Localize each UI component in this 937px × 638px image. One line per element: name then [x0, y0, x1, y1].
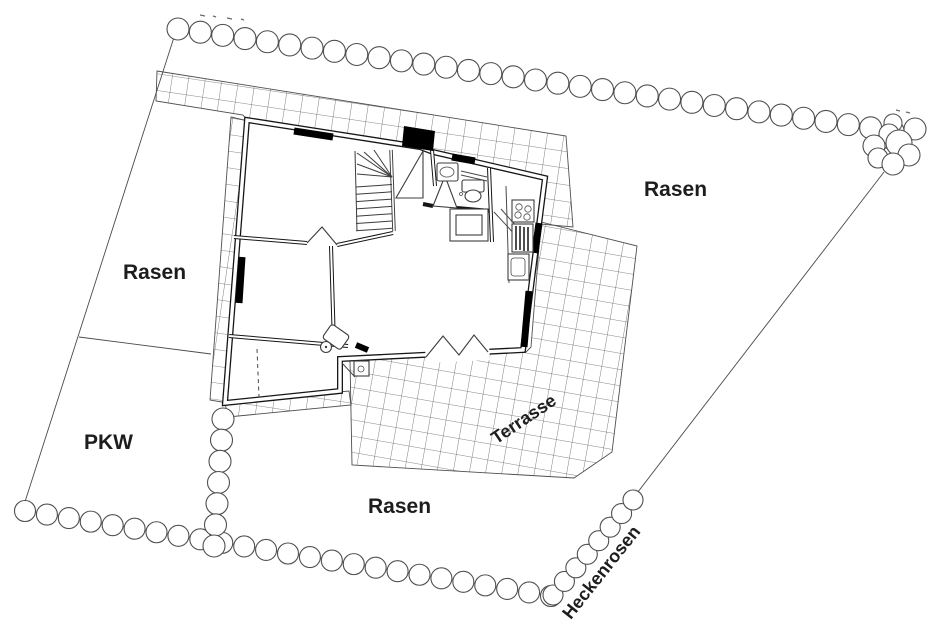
entry-step — [354, 361, 369, 376]
hedge-shrub-circle — [453, 571, 474, 592]
hedge-shrub-circle — [770, 104, 792, 126]
hedge-shrub-circle — [146, 522, 167, 543]
hedge-shrub-circle — [569, 75, 591, 97]
parking-divider-line — [79, 337, 211, 354]
hedge-shrub-circle — [387, 561, 408, 582]
hedge-shrub-circle — [206, 493, 228, 515]
hedge-shrub-circle — [208, 472, 230, 494]
hedge-shrub-circle — [882, 153, 904, 175]
window-top-right — [452, 157, 475, 161]
hedge-shrub-circle — [343, 554, 364, 575]
hedge-shrub-circle — [457, 59, 479, 81]
hedge-shrub-circle — [299, 547, 320, 568]
site-plan-canvas: Rasen Rasen Rasen PKW Terrasse Heckenros… — [0, 0, 937, 638]
hedge-shrub-circle — [346, 44, 368, 66]
hedge-shrub-circle — [837, 114, 859, 136]
hedge-shrub-circle — [480, 63, 502, 85]
toilet-bowl — [465, 190, 481, 202]
hedge-shrub-circle — [102, 515, 123, 536]
hedge-shrub-circle — [234, 536, 255, 557]
shower-inner — [456, 215, 482, 235]
hedge-shrub-circle — [614, 82, 636, 104]
hedge-shrub-circle — [681, 91, 703, 113]
hedge-shrub-circle — [189, 21, 211, 43]
hedge-shrub-circle — [365, 557, 386, 578]
hedge-shrub-circle — [212, 408, 234, 430]
hedge-shrub-circle — [278, 543, 299, 564]
hedge-shrub-circle — [301, 37, 323, 59]
hedge-shrub-circle — [592, 79, 614, 101]
hedge-shrub-circle — [205, 514, 227, 536]
hedge-shrub-circle — [497, 578, 518, 599]
hedge-shrub-circle — [15, 501, 36, 522]
hedge-shrub-circle — [502, 66, 524, 88]
hedge-shrub-circle — [409, 564, 430, 585]
hedge-shrub-circle — [234, 28, 256, 50]
hedge-shrub-circle — [168, 525, 189, 546]
hedge-shrub-circle — [368, 47, 390, 69]
hedge-shrub-circle — [793, 107, 815, 129]
hedge-shrub-circle — [279, 34, 301, 56]
hedge-shrub-circle — [413, 53, 435, 75]
label-lawn-right: Rasen — [644, 178, 707, 201]
window-right-2 — [524, 291, 529, 347]
hedge-shrub-circle — [525, 69, 547, 91]
label-parking: PKW — [84, 431, 133, 454]
hedge-shrub-circle — [547, 72, 569, 94]
hedge-shrub-circle — [519, 582, 540, 603]
hedge-shrub-circle — [124, 518, 145, 539]
hedge-shrub-circle — [203, 535, 225, 557]
hedge-shrub-circle — [256, 31, 278, 53]
hedge-bottom — [15, 501, 562, 607]
hedge-shrub-circle — [212, 24, 234, 46]
hedge-shrub-circle — [703, 95, 725, 117]
hedge-shrub-circle — [815, 110, 837, 132]
hedge-shrub-circle — [80, 511, 101, 532]
hedge-shrub-circle — [321, 550, 342, 571]
label-lawn-bottom: Rasen — [368, 495, 431, 518]
hedge-shrub-circle — [475, 575, 496, 596]
window-left — [239, 257, 242, 303]
oven — [512, 224, 533, 252]
window-right-1 — [535, 223, 539, 253]
hedge-shrub-circle — [209, 450, 231, 472]
hedge-shrub-circle — [636, 85, 658, 107]
hedge-shrub-circle — [623, 490, 643, 510]
hedge-shrub-circle — [58, 508, 79, 529]
hedge-shrub-circle — [211, 429, 233, 451]
hedge-shrub-circle — [659, 88, 681, 110]
hedge-shrub-circle — [36, 504, 57, 525]
hedge-shrub-circle — [167, 18, 189, 40]
site-plan-drawing: Rasen Rasen Rasen PKW Terrasse Heckenros… — [0, 0, 937, 638]
hedge-shrub-circle — [390, 50, 412, 72]
hedge-shrub-circle — [431, 568, 452, 589]
hedge-shrub-circle — [726, 98, 748, 120]
hedge-shrub-circle — [256, 539, 277, 560]
hedge-shrub-circle — [323, 40, 345, 62]
hedge-shrub-circle — [748, 101, 770, 123]
label-lawn-left: Rasen — [123, 261, 186, 284]
boundary-right — [634, 172, 884, 497]
hedge-shrub-circle — [435, 56, 457, 78]
